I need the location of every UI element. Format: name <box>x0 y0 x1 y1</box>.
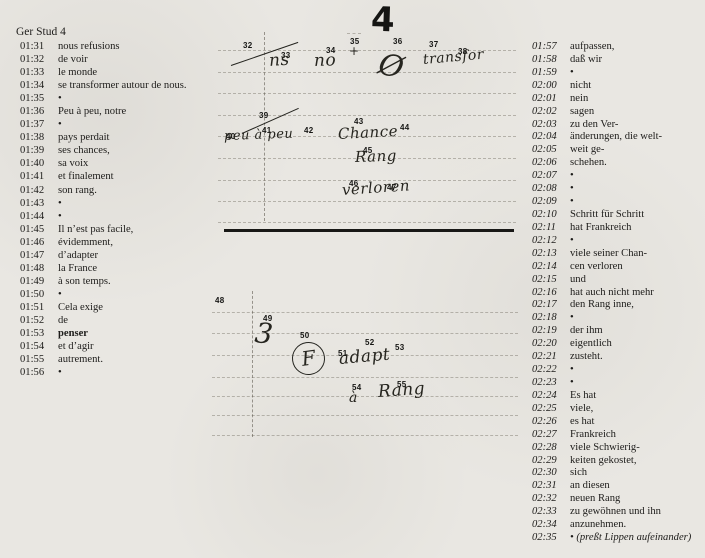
transcript-text: • <box>570 364 574 375</box>
transcript-row: 01:37• <box>20 119 187 132</box>
timestamp: 02:33 <box>532 506 562 517</box>
transcript-row: 02:35• (preßt Lippen aufeinander) <box>532 532 691 545</box>
timestamp: 01:39 <box>20 145 50 156</box>
ruled-line <box>212 415 518 416</box>
transcript-text: autrement. <box>58 354 103 365</box>
timestamp: 01:33 <box>20 67 50 78</box>
transcript-row: 02:16hat auch nicht mehr <box>532 287 691 300</box>
source-transcript-column: 01:31nous refusions01:32de voir01:33le m… <box>20 41 187 380</box>
timestamp: 01:44 <box>20 211 50 222</box>
transcript-text: et finalement <box>58 171 114 182</box>
transcript-text: • (preßt Lippen aufeinander) <box>570 532 691 543</box>
transcript-row: 01:58daß wir <box>532 54 691 67</box>
transcript-row: 02:13viele seiner Chan- <box>532 248 691 261</box>
transcript-text: Cela exige <box>58 302 103 313</box>
timestamp: 01:45 <box>20 224 50 235</box>
time-marker-number: 50 <box>300 331 310 340</box>
transcript-row: 01:34se transformer autour de nous. <box>20 80 187 93</box>
transcript-row: 02:08• <box>532 183 691 196</box>
transcript-row: 01:59• <box>532 67 691 80</box>
transcript-text: zu den Ver- <box>570 119 618 130</box>
time-marker-number: 36 <box>393 37 403 46</box>
transcript-row: 02:03zu den Ver- <box>532 119 691 132</box>
timestamp: 01:51 <box>20 302 50 313</box>
transcript-text: Peu à peu, notre <box>58 106 126 117</box>
transcript-text: Schritt für Schritt <box>570 209 644 220</box>
timestamp: 01:36 <box>20 106 50 117</box>
ruled-line <box>218 201 516 202</box>
transcript-row: 02:29keiten gekostet, <box>532 455 691 468</box>
transcript-row: 01:45Il n’est pas facile, <box>20 224 187 237</box>
transcript-text: ses chances, <box>58 145 110 156</box>
transcript-row: 01:46évidemment, <box>20 237 187 250</box>
transcript-row: 01:49à son temps. <box>20 276 187 289</box>
transcript-row: 02:02sagen <box>532 106 691 119</box>
timestamp: 02:20 <box>532 338 562 349</box>
timestamp: 02:09 <box>532 196 562 207</box>
transcript-text: keiten gekostet, <box>570 455 637 466</box>
transcript-text: daß wir <box>570 54 602 65</box>
transcript-row: 01:55autrement. <box>20 354 187 367</box>
transcript-row: 01:42son rang. <box>20 185 187 198</box>
transcript-row: 02:05weit ge- <box>532 144 691 157</box>
transcript-row: 01:47d’adapter <box>20 250 187 263</box>
transcript-text: viele, <box>570 403 593 414</box>
timestamp: 02:14 <box>532 261 562 272</box>
timestamp: 01:56 <box>20 367 50 378</box>
transcript-text: • <box>570 377 574 388</box>
handwritten-note: + <box>349 44 360 58</box>
transcript-text: Il n’est pas facile, <box>58 224 133 235</box>
timestamp: 02:15 <box>532 274 562 285</box>
timestamp: 01:35 <box>20 93 50 104</box>
transcript-text: • <box>58 289 62 300</box>
timestamp: 01:46 <box>20 237 50 248</box>
transcript-text: hat auch nicht mehr <box>570 287 654 298</box>
transcript-text: Frankreich <box>570 429 616 440</box>
transcript-text: nous refusions <box>58 41 120 52</box>
ruled-line <box>218 222 516 223</box>
transcript-text: weit ge- <box>570 144 604 155</box>
transcript-text: schehen. <box>570 157 607 168</box>
transcript-row: 02:22• <box>532 364 691 377</box>
transcript-row: 02:10Schritt für Schritt <box>532 209 691 222</box>
transcript-row: 02:17den Rang inne, <box>532 299 691 312</box>
timestamp: 02:03 <box>532 119 562 130</box>
transcript-row: 01:31nous refusions <box>20 41 187 54</box>
transcript-text: penser <box>58 328 88 339</box>
transcript-row: 02:06schehen. <box>532 157 691 170</box>
transcript-row: 02:21zusteht. <box>532 351 691 364</box>
transcript-row: 02:25viele, <box>532 403 691 416</box>
timestamp: 01:32 <box>20 54 50 65</box>
ruled-line <box>218 72 516 73</box>
transcript-row: 02:23• <box>532 377 691 390</box>
transcript-text: d’adapter <box>58 250 98 261</box>
transcript-text: der ihm <box>570 325 603 336</box>
timestamp: 02:21 <box>532 351 562 362</box>
time-marker-number: 48 <box>215 296 225 305</box>
transcript-row: 01:56• <box>20 367 187 380</box>
timestamp: 02:16 <box>532 287 562 298</box>
timestamp: 02:13 <box>532 248 562 259</box>
transcript-text: Es hat <box>570 390 596 401</box>
time-marker-number: 39 <box>259 111 269 120</box>
transcript-row: 02:28viele Schwierig- <box>532 442 691 455</box>
timestamp: 02:11 <box>532 222 562 233</box>
transcript-text: es hat <box>570 416 594 427</box>
handwritten-note: Ø <box>375 47 408 87</box>
transcript-row: 02:00nicht <box>532 80 691 93</box>
transcript-text: son rang. <box>58 185 97 196</box>
transcript-row: 01:53penser <box>20 328 187 341</box>
transcript-text: • <box>570 196 574 207</box>
timestamp: 01:49 <box>20 276 50 287</box>
transcript-row: 01:50• <box>20 289 187 302</box>
timestamp: 01:47 <box>20 250 50 261</box>
transcript-row: 02:20eigentlich <box>532 338 691 351</box>
transcript-text: an diesen <box>570 480 610 491</box>
ruled-line <box>218 93 516 94</box>
transcript-text: de voir <box>58 54 88 65</box>
scanned-notes-page: Ger Stud 4 4 01:31nous refusions01:32de … <box>0 0 705 558</box>
transcript-text: le monde <box>58 67 97 78</box>
timestamp: 01:59 <box>532 67 562 78</box>
transcript-row: 01:52de <box>20 315 187 328</box>
transcript-text: sich <box>570 467 587 478</box>
transcript-text: la France <box>58 263 97 274</box>
timestamp: 02:17 <box>532 299 562 310</box>
transcript-text: aufpassen, <box>570 41 614 52</box>
handwritten-note: Chance <box>338 122 399 143</box>
time-marker-number: 32 <box>243 41 253 50</box>
transcript-text: sa voix <box>58 158 88 169</box>
timestamp: 02:28 <box>532 442 562 453</box>
handwritten-note: ns <box>268 50 290 71</box>
transcript-row: 02:32neuen Rang <box>532 493 691 506</box>
timestamp: 01:40 <box>20 158 50 169</box>
transcript-row: 02:11hat Frankreich <box>532 222 691 235</box>
transcript-text: et d’agir <box>58 341 94 352</box>
handwritten-note: Rang <box>377 379 425 402</box>
transcript-text: viele seiner Chan- <box>570 248 647 259</box>
transcript-text: cen verloren <box>570 261 623 272</box>
transcript-row: 01:36Peu à peu, notre <box>20 106 187 119</box>
transcript-row: 02:30sich <box>532 467 691 480</box>
timestamp: 01:48 <box>20 263 50 274</box>
transcript-text: • <box>58 198 62 209</box>
transcript-text: évidemment, <box>58 237 113 248</box>
transcript-row: 02:33zu gewöhnen und ihn <box>532 506 691 519</box>
transcript-row: 02:18• <box>532 312 691 325</box>
timestamp: 02:32 <box>532 493 562 504</box>
transcript-row: 01:33le monde <box>20 67 187 80</box>
timestamp: 02:26 <box>532 416 562 427</box>
transcript-row: 02:24Es hat <box>532 390 691 403</box>
document-title: Ger Stud 4 <box>16 26 66 38</box>
timestamp: 01:37 <box>20 119 50 130</box>
transcript-row: 02:01nein <box>532 93 691 106</box>
timestamp: 01:42 <box>20 185 50 196</box>
transcript-text: und <box>570 274 586 285</box>
timestamp: 02:12 <box>532 235 562 246</box>
timestamp: 02:18 <box>532 312 562 323</box>
transcript-row: 02:14cen verloren <box>532 261 691 274</box>
timestamp: 02:10 <box>532 209 562 220</box>
timestamp: 02:23 <box>532 377 562 388</box>
transcript-row: 02:09• <box>532 196 691 209</box>
timestamp: 02:07 <box>532 170 562 181</box>
timestamp: 02:24 <box>532 390 562 401</box>
transcript-text: • <box>58 367 62 378</box>
transcript-text: zusteht. <box>570 351 603 362</box>
timestamp: 01:41 <box>20 171 50 182</box>
transcript-text: änderungen, die welt- <box>570 131 662 142</box>
timestamp: 01:53 <box>20 328 50 339</box>
transcript-row: 01:43• <box>20 198 187 211</box>
transcript-row: 02:07• <box>532 170 691 183</box>
timestamp: 02:34 <box>532 519 562 530</box>
timestamp: 02:05 <box>532 144 562 155</box>
transcript-row: 02:26es hat <box>532 416 691 429</box>
transcript-text: • <box>570 235 574 246</box>
timestamp: 02:31 <box>532 480 562 491</box>
transcript-row: 02:34anzunehmen. <box>532 519 691 532</box>
timestamp: 01:34 <box>20 80 50 91</box>
transcript-text: • <box>570 312 574 323</box>
timestamp: 02:35 <box>532 532 562 543</box>
transcript-text: pays perdait <box>58 132 109 143</box>
time-marker-number: 53 <box>395 343 405 352</box>
timestamp: 01:58 <box>532 54 562 65</box>
ruled-line <box>212 435 518 436</box>
timestamp: 02:19 <box>532 325 562 336</box>
handwritten-note: Rang <box>355 147 397 166</box>
timestamp: 01:54 <box>20 341 50 352</box>
transcript-row: 02:12• <box>532 235 691 248</box>
transcript-row: 01:40sa voix <box>20 158 187 171</box>
handwritten-note: verloren <box>341 176 410 199</box>
timestamp: 02:30 <box>532 467 562 478</box>
interpretation-transcript-column: 01:57aufpassen,01:58daß wir01:59•02:00ni… <box>532 41 691 545</box>
handwritten-note: adapt <box>338 345 391 369</box>
transcript-row: 01:48la France <box>20 263 187 276</box>
timestamp: 02:02 <box>532 106 562 117</box>
timestamp: 02:00 <box>532 80 562 91</box>
transcript-text: zu gewöhnen und ihn <box>570 506 661 517</box>
transcript-row: 01:39ses chances, <box>20 145 187 158</box>
timestamp: 01:43 <box>20 198 50 209</box>
transcript-text: se transformer autour de nous. <box>58 80 187 91</box>
transcript-text: • <box>58 211 62 222</box>
timestamp: 01:38 <box>20 132 50 143</box>
transcript-row: 01:44• <box>20 211 187 224</box>
section-divider-line <box>224 229 514 232</box>
ruled-line <box>347 33 361 34</box>
transcript-row: 01:51Cela exige <box>20 302 187 315</box>
timestamp: 02:22 <box>532 364 562 375</box>
timestamp: 02:29 <box>532 455 562 466</box>
timestamp: 02:01 <box>532 93 562 104</box>
transcript-text: anzunehmen. <box>570 519 626 530</box>
timestamp: 01:52 <box>20 315 50 326</box>
transcript-text: • <box>58 93 62 104</box>
handwritten-page-number: 4 <box>370 0 395 40</box>
ruled-line <box>212 377 518 378</box>
time-marker-number: 42 <box>304 126 314 135</box>
transcript-text: • <box>58 119 62 130</box>
transcript-text: sagen <box>570 106 594 117</box>
timestamp: 01:55 <box>20 354 50 365</box>
margin-line <box>252 291 253 437</box>
transcript-text: nein <box>570 93 588 104</box>
timestamp: 02:06 <box>532 157 562 168</box>
transcript-row: 02:31an diesen <box>532 480 691 493</box>
transcript-text: • <box>570 170 574 181</box>
transcript-row: 01:38pays perdait <box>20 132 187 145</box>
transcript-row: 01:41et finalement <box>20 171 187 184</box>
transcript-text: nicht <box>570 80 591 91</box>
transcript-text: de <box>58 315 68 326</box>
transcript-row: 01:57aufpassen, <box>532 41 691 54</box>
handwritten-note: peu à peu <box>224 127 294 144</box>
timestamp: 02:04 <box>532 131 562 142</box>
transcript-text: eigentlich <box>570 338 612 349</box>
time-marker-number: 44 <box>400 123 410 132</box>
timestamp: 01:50 <box>20 289 50 300</box>
transcript-row: 02:15und <box>532 274 691 287</box>
transcript-row: 02:19der ihm <box>532 325 691 338</box>
timestamp: 02:25 <box>532 403 562 414</box>
transcript-row: 02:04änderungen, die welt- <box>532 131 691 144</box>
transcript-row: 01:32de voir <box>20 54 187 67</box>
transcript-row: 01:35• <box>20 93 187 106</box>
handwritten-note: no <box>314 50 337 71</box>
transcript-text: den Rang inne, <box>570 299 634 310</box>
transcript-text: neuen Rang <box>570 493 620 504</box>
handwritten-note: à <box>349 390 358 406</box>
transcript-row: 01:54et d’agir <box>20 341 187 354</box>
transcript-text: • <box>570 183 574 194</box>
timestamp: 01:57 <box>532 41 562 52</box>
timestamp: 02:27 <box>532 429 562 440</box>
transcript-text: • <box>570 67 574 78</box>
ruled-line <box>212 396 518 397</box>
ruled-line <box>212 312 518 313</box>
circled-letter: F <box>290 340 327 377</box>
transcript-text: hat Frankreich <box>570 222 631 233</box>
timestamp: 01:31 <box>20 41 50 52</box>
timestamp: 02:08 <box>532 183 562 194</box>
transcript-row: 02:27Frankreich <box>532 429 691 442</box>
time-marker-number: 37 <box>429 40 439 49</box>
transcript-text: viele Schwierig- <box>570 442 640 453</box>
transcript-text: à son temps. <box>58 276 111 287</box>
handwritten-note: 3 <box>253 316 275 351</box>
